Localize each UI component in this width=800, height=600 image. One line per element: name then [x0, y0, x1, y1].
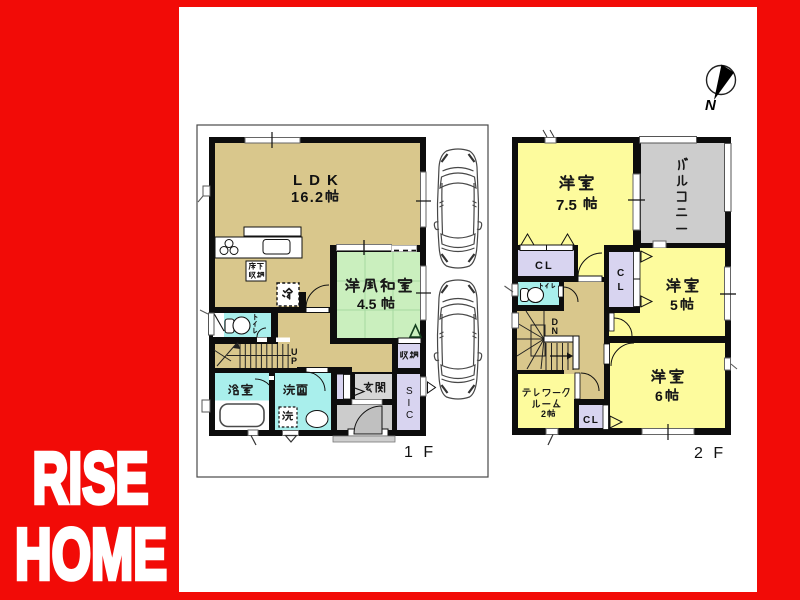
- svg-text:5: 5: [670, 297, 678, 313]
- svg-text:N: N: [705, 97, 717, 114]
- svg-text:4.5: 4.5: [357, 296, 377, 312]
- svg-text:2 F: 2 F: [694, 445, 726, 462]
- svg-text:S: S: [406, 386, 413, 397]
- svg-text:16.2: 16.2: [291, 190, 324, 206]
- svg-text:2: 2: [541, 409, 546, 419]
- svg-text:7.5: 7.5: [556, 197, 577, 214]
- svg-text:CL: CL: [583, 415, 599, 426]
- svg-text:HOME: HOME: [15, 515, 167, 595]
- svg-text:6: 6: [655, 388, 663, 404]
- svg-text:N: N: [552, 326, 559, 336]
- svg-text:CL: CL: [535, 260, 554, 272]
- svg-text:P: P: [291, 356, 297, 366]
- svg-text:I: I: [408, 398, 411, 409]
- svg-text:LDK: LDK: [293, 172, 345, 189]
- svg-text:1 F: 1 F: [404, 444, 436, 461]
- svg-text:C: C: [406, 410, 413, 421]
- svg-text:C: C: [617, 268, 624, 279]
- svg-text:L: L: [618, 282, 624, 293]
- svg-text:RISE: RISE: [33, 439, 149, 519]
